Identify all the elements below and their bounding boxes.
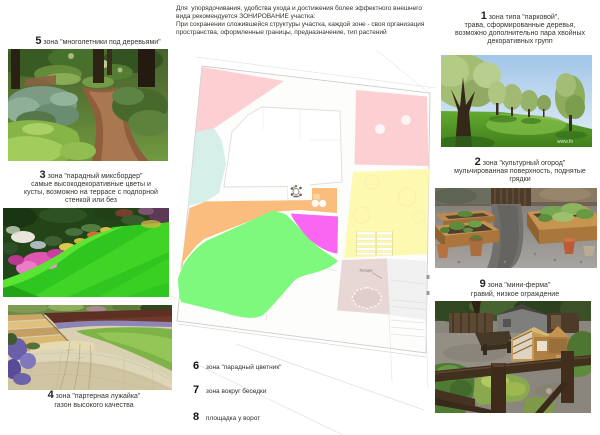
svg-text:www.fo: www.fo [557,139,573,145]
svg-text:беседка: беседка [360,269,373,273]
